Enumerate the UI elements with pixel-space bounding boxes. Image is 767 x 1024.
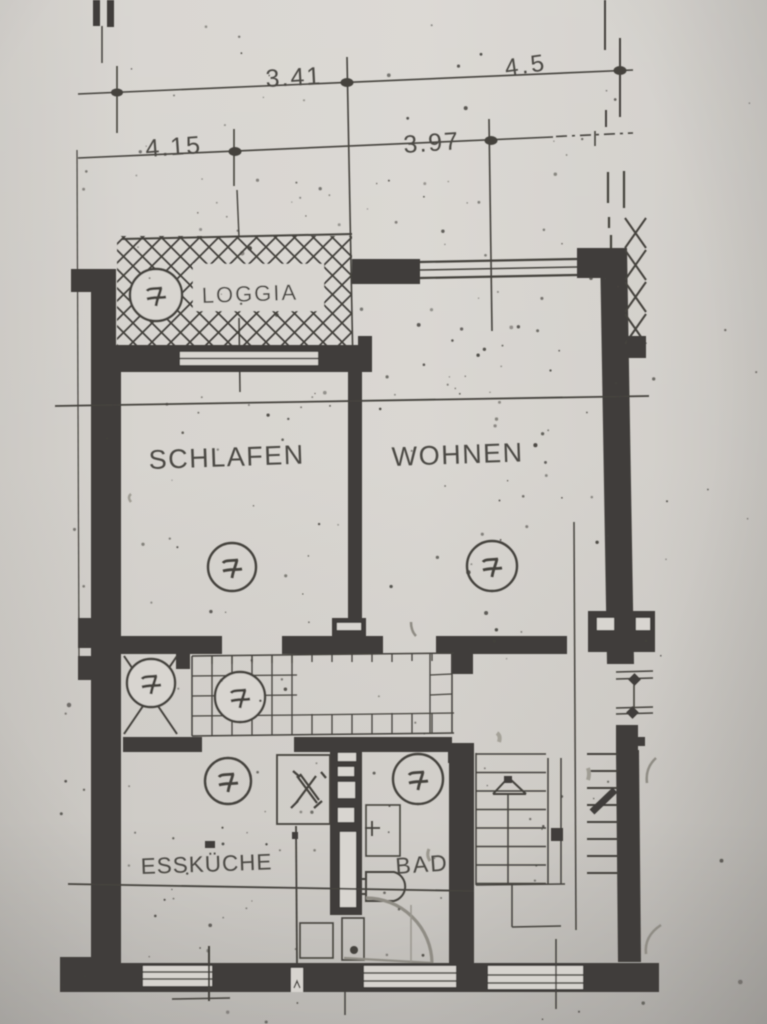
svg-text:BAD: BAD (395, 849, 450, 879)
svg-text:WOHNEN: WOHNEN (391, 437, 524, 472)
svg-text:4.15: 4.15 (144, 131, 202, 163)
svg-text:LOGGIA: LOGGIA (201, 280, 298, 308)
svg-text:3.97: 3.97 (402, 127, 460, 159)
svg-text:ESSKÜCHE: ESSKÜCHE (140, 849, 273, 879)
svg-text:3.41: 3.41 (265, 62, 323, 93)
svg-text:SCHLAFEN: SCHLAFEN (148, 440, 305, 475)
